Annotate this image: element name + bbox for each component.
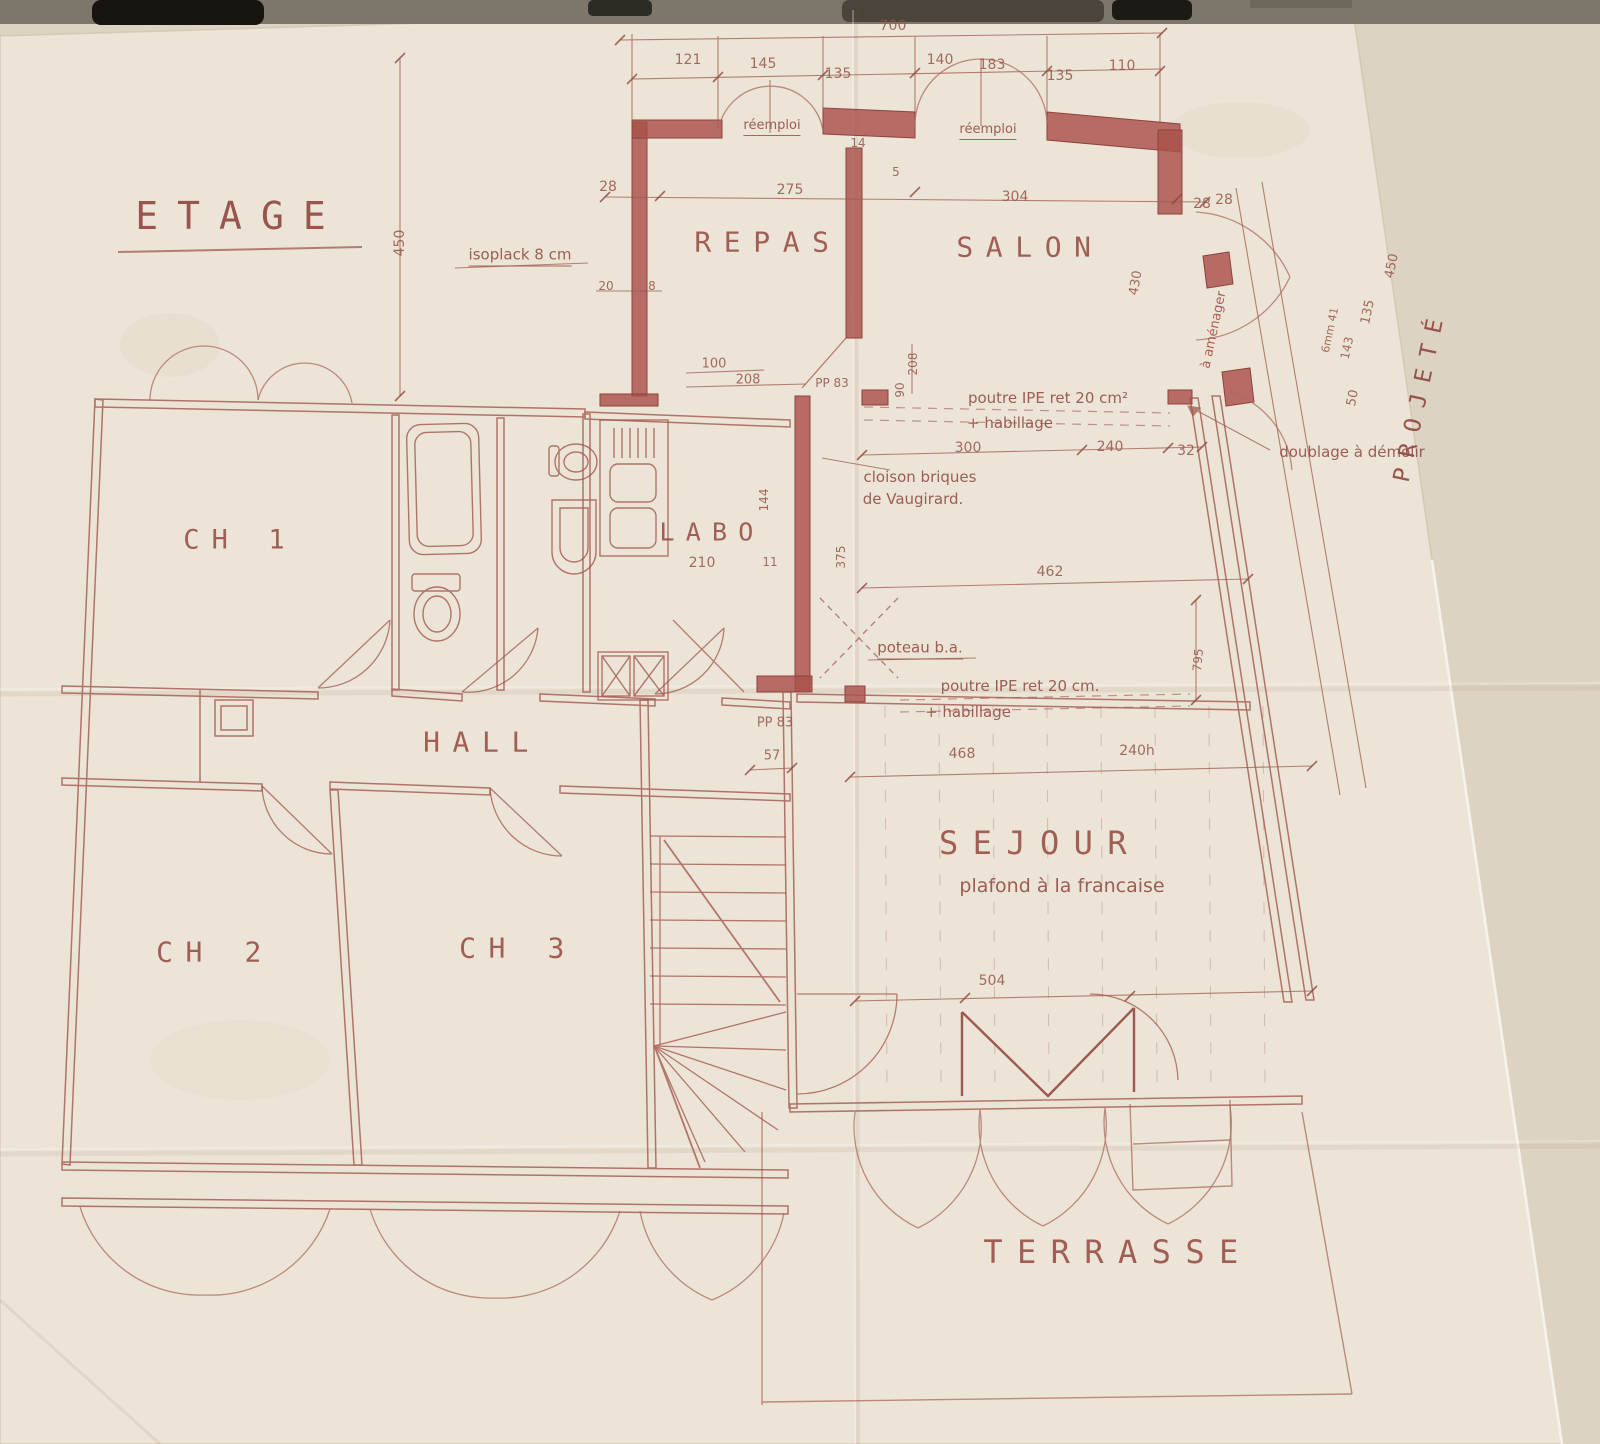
dim-28b: 28 <box>1193 196 1211 212</box>
dim-pp83a: PP 83 <box>815 376 849 390</box>
dim-32: 32 <box>1177 443 1195 459</box>
dim-450L: 450 <box>392 230 408 257</box>
dim-300: 300 <box>955 440 982 456</box>
dim-121: 121 <box>675 52 702 68</box>
dim-110: 110 <box>1109 58 1136 74</box>
note-habillage-2: + habillage <box>925 703 1011 721</box>
dim-450R: 450 <box>1382 252 1402 279</box>
room-ch1: CH 1 <box>183 525 297 556</box>
room-repas: REPAS <box>694 226 841 259</box>
note-reemploi-1: réemploi <box>743 118 800 136</box>
room-terrasse: TERRASSE <box>983 1233 1252 1271</box>
dim-375: 375 <box>834 546 848 569</box>
dim-28c: 28 <box>1215 192 1233 208</box>
dim-100: 100 <box>702 357 727 372</box>
room-ch2: CH 2 <box>156 936 274 969</box>
dim-700: 700 <box>880 18 907 34</box>
dim-144: 144 <box>757 489 771 512</box>
plan-title: ETAGE <box>135 194 344 238</box>
room-sejour: SEJOUR <box>939 824 1141 862</box>
dim-430: 430 <box>1126 269 1145 296</box>
room-hall: HALL <box>423 726 541 759</box>
dim-504: 504 <box>979 973 1006 989</box>
dim-8: 8 <box>648 279 656 293</box>
note-poteau: poteau b.a. <box>877 639 963 660</box>
dim-135c: 135 <box>1358 298 1378 325</box>
dim-468: 468 <box>949 746 976 762</box>
dim-143: 143 <box>1338 335 1356 360</box>
dim-304: 304 <box>1002 189 1029 205</box>
note-poutre-2: poutre IPE ret 20 cm. <box>941 677 1100 695</box>
note-reemploi-2: réemploi <box>959 122 1016 140</box>
dim-140: 140 <box>927 52 954 68</box>
dim-14: 14 <box>850 136 865 150</box>
dim-57: 57 <box>764 749 781 764</box>
dim-240h: 240h <box>1119 743 1155 759</box>
dim-210: 210 <box>689 555 716 571</box>
dim-135b: 135 <box>1047 68 1074 84</box>
dim-183: 183 <box>979 57 1006 73</box>
photo-of-floor-plan: ETAGEREPASSALONCH 1LABOHALLCH 2CH 3SEJOU… <box>0 0 1600 1444</box>
note-isoplack: isoplack 8 cm <box>469 246 572 267</box>
note-cloison-2: de Vaugirard. <box>863 490 964 508</box>
room-labo: LABO <box>659 518 764 547</box>
dim-462: 462 <box>1037 564 1064 580</box>
dim-240: 240 <box>1097 439 1124 455</box>
dim-5: 5 <box>892 165 900 179</box>
dim-90: 90 <box>893 382 907 397</box>
dim-208b: 208 <box>906 353 920 376</box>
dim-795: 795 <box>1190 648 1206 672</box>
dim-pp83b: PP 83 <box>757 716 793 731</box>
note-cloison-1: cloison briques <box>864 468 977 486</box>
room-salon: SALON <box>956 231 1103 264</box>
note-amenager: à aménager <box>1199 290 1230 370</box>
dim-50: 50 <box>1344 388 1362 407</box>
dim-135a: 135 <box>825 66 852 82</box>
note-habillage-1: + habillage <box>967 414 1053 432</box>
plan-labels-layer: ETAGEREPASSALONCH 1LABOHALLCH 2CH 3SEJOU… <box>0 0 1600 1444</box>
dim-145: 145 <box>750 56 777 72</box>
dim-208a: 208 <box>736 373 761 388</box>
dim-11: 11 <box>762 555 777 569</box>
dim-20: 20 <box>598 279 613 293</box>
note-plafond: plafond à la francaise <box>959 875 1164 897</box>
dim-28a: 28 <box>599 179 617 195</box>
dim-6mm41: 6mm 41 <box>1319 306 1341 354</box>
room-ch3: CH 3 <box>459 932 577 965</box>
note-poutre-1: poutre IPE ret 20 cm² <box>968 389 1128 407</box>
dim-275: 275 <box>777 182 804 198</box>
